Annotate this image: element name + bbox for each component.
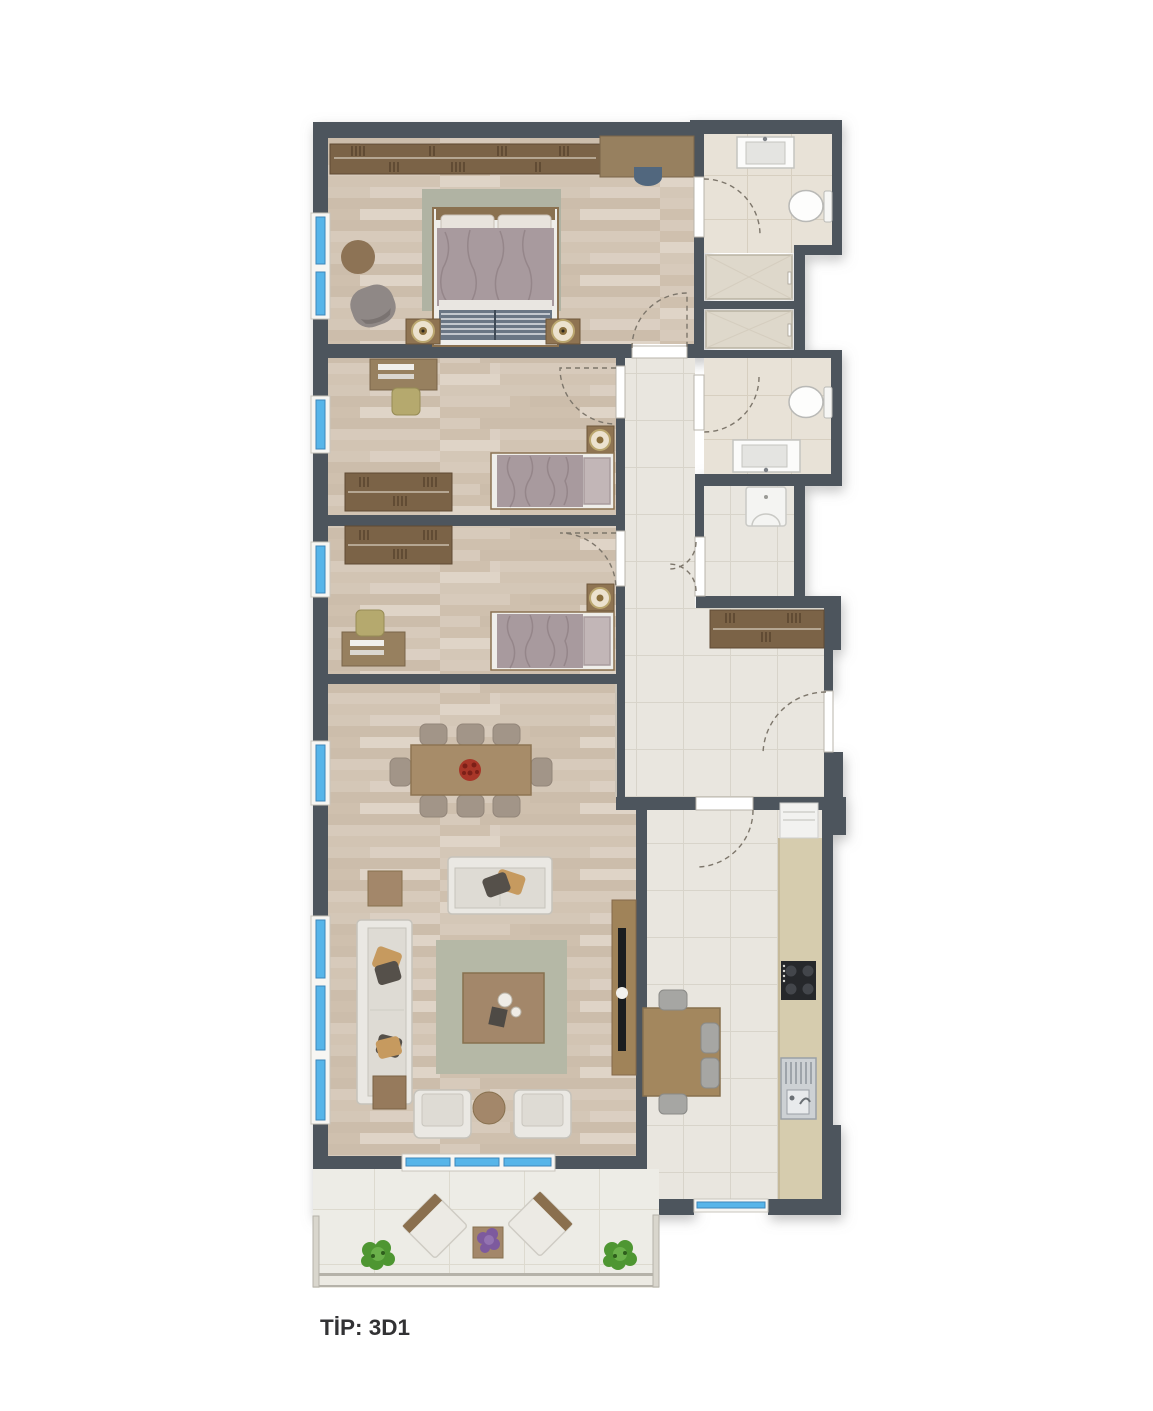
svg-text:TİP: 3D1: TİP: 3D1 xyxy=(320,1315,410,1340)
